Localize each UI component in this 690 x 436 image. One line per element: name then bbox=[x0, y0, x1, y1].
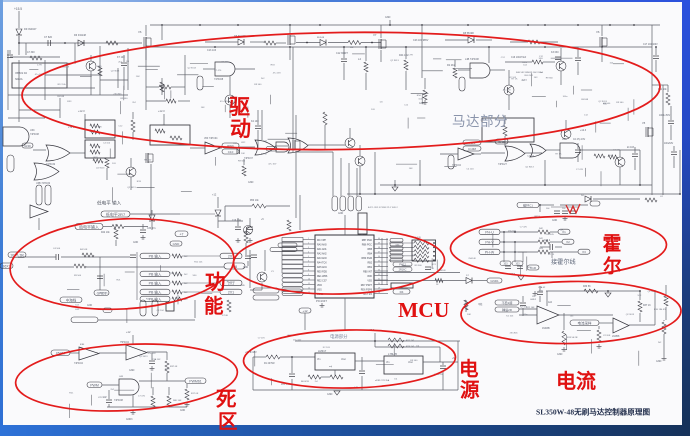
svg-text:R17 0K: R17 0K bbox=[191, 393, 199, 395]
svg-text:RA5 AN4: RA5 AN4 bbox=[317, 266, 327, 269]
svg-text:K2 103: K2 103 bbox=[323, 347, 331, 349]
svg-text:7: 7 bbox=[308, 265, 309, 267]
svg-text:5: 5 bbox=[308, 256, 309, 258]
svg-text:103: 103 bbox=[503, 262, 508, 265]
svg-text:R42 10k: R42 10k bbox=[101, 232, 110, 234]
svg-text:MC VPP: MC VPP bbox=[317, 240, 326, 242]
svg-text:9: 9 bbox=[308, 274, 309, 276]
svg-text:30: 30 bbox=[378, 283, 380, 285]
svg-text:SL350W-48无刷马达控制器原理图: SL350W-48无刷马达控制器原理图 bbox=[536, 407, 650, 417]
svg-text:C12: C12 bbox=[404, 104, 409, 106]
svg-text:C4 104: C4 104 bbox=[53, 248, 61, 250]
svg-text:GND: GND bbox=[385, 16, 391, 19]
svg-text:R4 51K: R4 51K bbox=[80, 249, 88, 251]
svg-text:R9 560: R9 560 bbox=[144, 159, 152, 161]
svg-text:D4: D4 bbox=[394, 378, 398, 380]
svg-text:RB4: RB4 bbox=[367, 253, 372, 255]
svg-text:PWM: PWM bbox=[90, 383, 99, 387]
svg-text:C7 470: C7 470 bbox=[95, 127, 103, 129]
svg-text:VSS: VSS bbox=[317, 289, 322, 291]
svg-text:5K6: 5K6 bbox=[396, 245, 401, 247]
svg-text:10K: 10K bbox=[241, 153, 245, 155]
svg-text:L4: L4 bbox=[358, 57, 361, 61]
svg-text:C10: C10 bbox=[228, 150, 234, 154]
svg-text:D7: D7 bbox=[466, 275, 470, 277]
svg-text:RB3 PGM: RB3 PGM bbox=[362, 258, 373, 260]
svg-text:U5F 74HC04: U5F 74HC04 bbox=[204, 138, 218, 140]
svg-text:U3C: U3C bbox=[30, 129, 35, 132]
svg-text:C12: C12 bbox=[584, 114, 589, 116]
svg-text:PB 输入: PB 输入 bbox=[149, 281, 162, 286]
svg-text:6: 6 bbox=[308, 260, 309, 262]
svg-text:RB7 PGD: RB7 PGD bbox=[362, 240, 373, 242]
svg-text:PH-W: PH-W bbox=[485, 251, 495, 255]
svg-text:Q2 9013: Q2 9013 bbox=[127, 187, 136, 189]
svg-text:11: 11 bbox=[308, 283, 310, 285]
svg-text:RB5: RB5 bbox=[367, 249, 372, 251]
svg-text:D4: D4 bbox=[315, 381, 319, 383]
svg-text:GND: GND bbox=[338, 213, 343, 215]
svg-text:C12: C12 bbox=[118, 126, 123, 128]
svg-text:功: 功 bbox=[205, 271, 226, 294]
svg-text:U4F: U4F bbox=[119, 376, 124, 378]
svg-text:C12: C12 bbox=[103, 397, 108, 399]
svg-text:电: 电 bbox=[459, 358, 479, 381]
svg-text:RA3 AN3: RA3 AN3 bbox=[317, 257, 327, 260]
svg-text:Q2 9013: Q2 9013 bbox=[390, 60, 399, 62]
svg-text:C4 104: C4 104 bbox=[103, 143, 111, 145]
svg-text:74HC37: 74HC37 bbox=[244, 157, 253, 160]
svg-text:V6: V6 bbox=[138, 30, 142, 34]
svg-text:C13 103: C13 103 bbox=[207, 49, 217, 52]
svg-text:100n: 100n bbox=[523, 314, 529, 316]
svg-text:R9 560: R9 560 bbox=[546, 78, 554, 80]
svg-text:中海线: 中海线 bbox=[66, 297, 77, 302]
svg-text:Q2 9013: Q2 9013 bbox=[188, 68, 197, 70]
svg-text:28: 28 bbox=[378, 292, 380, 294]
svg-text:39: 39 bbox=[378, 242, 380, 244]
svg-text:尔: 尔 bbox=[603, 256, 622, 277]
svg-text:R9 560: R9 560 bbox=[120, 98, 128, 100]
svg-text:GND2: GND2 bbox=[530, 299, 537, 301]
svg-text:磁环C1: 磁环C1 bbox=[523, 202, 533, 207]
svg-text:4.7R: 4.7R bbox=[408, 55, 413, 57]
svg-text:PB 输入: PB 输入 bbox=[149, 290, 162, 295]
svg-text:29: 29 bbox=[378, 287, 380, 289]
svg-text:R33: R33 bbox=[271, 65, 276, 67]
svg-text:104: 104 bbox=[546, 208, 550, 210]
svg-text:不稳: 不稳 bbox=[478, 302, 483, 306]
svg-text:V7: V7 bbox=[373, 33, 377, 37]
svg-text:2k2: 2k2 bbox=[658, 342, 662, 344]
svg-text:L4B 74HC08: L4B 74HC08 bbox=[465, 58, 479, 61]
svg-text:74HC04: 74HC04 bbox=[74, 362, 83, 365]
svg-text:C7 470: C7 470 bbox=[613, 150, 621, 152]
svg-text:RC7 RX: RC7 RX bbox=[363, 294, 372, 296]
svg-text:C7 470: C7 470 bbox=[214, 70, 222, 72]
svg-text:104: 104 bbox=[610, 63, 614, 65]
svg-text:RB2: RB2 bbox=[367, 262, 372, 264]
svg-text:1M03B: 1M03B bbox=[542, 327, 550, 330]
svg-text:R7 1K: R7 1K bbox=[548, 254, 555, 256]
svg-text:R7 1K: R7 1K bbox=[261, 153, 268, 155]
svg-text:C3A 102: C3A 102 bbox=[152, 358, 161, 361]
svg-text:Q2 9013: Q2 9013 bbox=[626, 314, 635, 316]
svg-text:C4 104: C4 104 bbox=[157, 310, 165, 312]
svg-text:RE0 RD5: RE0 RD5 bbox=[317, 271, 328, 273]
svg-text:C12: C12 bbox=[501, 57, 506, 59]
svg-text:R9 560: R9 560 bbox=[238, 161, 246, 163]
svg-text:35: 35 bbox=[378, 260, 380, 262]
svg-text:104: 104 bbox=[523, 65, 527, 67]
svg-text:GND: GND bbox=[327, 393, 333, 396]
svg-text:V5: V5 bbox=[642, 121, 646, 125]
svg-text:37: 37 bbox=[378, 251, 380, 253]
svg-text:C2 20K: C2 20K bbox=[603, 335, 611, 337]
svg-text:Q2 9013: Q2 9013 bbox=[525, 167, 534, 169]
svg-text:区: 区 bbox=[218, 411, 238, 433]
svg-text:VDD: VDD bbox=[367, 276, 372, 278]
svg-text:RB6 PGC: RB6 PGC bbox=[362, 244, 373, 246]
svg-text:103: 103 bbox=[534, 77, 538, 79]
svg-text:Q2 9013: Q2 9013 bbox=[96, 167, 105, 169]
svg-text:R21: R21 bbox=[117, 280, 122, 282]
svg-text:VDD: VDD bbox=[317, 285, 322, 287]
svg-text:GND1: GND1 bbox=[490, 279, 499, 283]
svg-text:12: 12 bbox=[308, 287, 310, 289]
svg-text:2SC945: 2SC945 bbox=[114, 94, 123, 96]
svg-text:GND: GND bbox=[552, 220, 557, 222]
svg-text:74HC08: 74HC08 bbox=[214, 78, 224, 81]
svg-text:LM358: LM358 bbox=[612, 335, 620, 338]
svg-text:2SC945: 2SC945 bbox=[546, 234, 555, 236]
svg-text:A7 300: A7 300 bbox=[27, 51, 35, 54]
svg-text:K2 103: K2 103 bbox=[509, 77, 517, 79]
svg-text:8: 8 bbox=[308, 269, 309, 271]
svg-text:V4: V4 bbox=[660, 196, 663, 198]
svg-text:2X1: 2X1 bbox=[228, 291, 234, 295]
svg-text:1: 1 bbox=[308, 238, 309, 240]
svg-text:100n: 100n bbox=[563, 96, 569, 98]
svg-text:RE1 WR6: RE1 WR6 bbox=[317, 276, 328, 278]
svg-text:不稳2措: 不稳2措 bbox=[502, 300, 513, 305]
svg-text:C10M: C10M bbox=[468, 147, 477, 151]
svg-text:Vin: Vin bbox=[386, 361, 390, 364]
svg-text:74HC08: 74HC08 bbox=[114, 399, 123, 402]
svg-text:R23 2k2: R23 2k2 bbox=[406, 346, 415, 348]
svg-text:10K: 10K bbox=[637, 295, 641, 297]
svg-text:R3T 1K: R3T 1K bbox=[643, 305, 651, 307]
svg-text:5K6: 5K6 bbox=[539, 58, 544, 60]
svg-text:uF3R C7R 35A: uF3R C7R 35A bbox=[375, 379, 390, 382]
svg-text:PB 输入: PB 输入 bbox=[149, 272, 162, 277]
svg-text:C7 820: C7 820 bbox=[44, 36, 53, 39]
svg-text:R12 10k: R12 10k bbox=[194, 262, 203, 264]
svg-text:GND: GND bbox=[248, 181, 254, 184]
svg-text:R9 560: R9 560 bbox=[616, 102, 624, 104]
svg-text:R9 560: R9 560 bbox=[74, 275, 82, 277]
svg-text:R30 5K: R30 5K bbox=[583, 286, 591, 288]
svg-text:RD7 PSP7: RD7 PSP7 bbox=[361, 285, 373, 287]
svg-text:103: 103 bbox=[371, 109, 375, 111]
svg-text:低电平2R7: 低电平2R7 bbox=[106, 211, 126, 217]
svg-text:R40 5K1: R40 5K1 bbox=[525, 75, 534, 77]
svg-text:K3 030: K3 030 bbox=[551, 51, 559, 54]
svg-text:47u 16V: 47u 16V bbox=[220, 101, 229, 103]
svg-text:R6D 50K: R6D 50K bbox=[173, 400, 182, 402]
svg-text:47u 16V: 47u 16V bbox=[148, 353, 157, 355]
svg-text:GND: GND bbox=[243, 267, 248, 269]
svg-text:低电平 输入: 低电平 输入 bbox=[97, 200, 122, 207]
svg-text:K2 103: K2 103 bbox=[506, 315, 514, 317]
svg-text:V1: V1 bbox=[271, 271, 274, 273]
svg-text:R12 10k: R12 10k bbox=[227, 281, 236, 283]
svg-text:1K: 1K bbox=[436, 284, 439, 286]
svg-text:RA1 AN1: RA1 AN1 bbox=[317, 248, 327, 251]
svg-text:R21: R21 bbox=[432, 264, 437, 266]
svg-text:R56: R56 bbox=[417, 95, 422, 97]
svg-text:源: 源 bbox=[460, 379, 480, 402]
svg-text:IN4148: IN4148 bbox=[469, 258, 477, 260]
svg-text:X2: X2 bbox=[566, 240, 570, 244]
svg-text:R0 8CR: R0 8CR bbox=[301, 381, 309, 383]
svg-text:104: 104 bbox=[532, 296, 536, 298]
svg-text:GND: GND bbox=[24, 144, 32, 148]
svg-text:IN4148: IN4148 bbox=[581, 99, 589, 101]
svg-text:R1 2R 5W: R1 2R 5W bbox=[264, 363, 275, 365]
svg-text:马达部分: 马达部分 bbox=[452, 114, 508, 129]
svg-text:C17 104 100V: C17 104 100V bbox=[643, 44, 658, 46]
svg-text:100n: 100n bbox=[165, 368, 171, 370]
svg-text:能: 能 bbox=[204, 295, 224, 318]
svg-text:5K6: 5K6 bbox=[193, 275, 198, 277]
svg-text:GND: GND bbox=[180, 410, 185, 412]
svg-text:100u63V: 100u63V bbox=[664, 143, 674, 145]
svg-text:死: 死 bbox=[216, 388, 237, 411]
svg-text:R12 10k: R12 10k bbox=[58, 84, 67, 86]
svg-text:2R16C: 2R16C bbox=[399, 268, 407, 271]
svg-text:电流采样: 电流采样 bbox=[578, 320, 592, 325]
svg-text:GND: GND bbox=[557, 353, 563, 356]
svg-text:R50 10k: R50 10k bbox=[250, 200, 259, 202]
svg-text:D6: D6 bbox=[581, 195, 585, 197]
svg-text:2: 2 bbox=[308, 242, 309, 244]
svg-text:C4 104: C4 104 bbox=[466, 168, 474, 170]
svg-text:GND: GND bbox=[656, 360, 662, 363]
svg-text:V6: V6 bbox=[596, 30, 600, 34]
svg-text:R9 560: R9 560 bbox=[415, 265, 423, 267]
svg-text:R22 2k2: R22 2k2 bbox=[406, 340, 415, 342]
svg-text:R7 1K: R7 1K bbox=[555, 154, 562, 156]
svg-text:2SC945: 2SC945 bbox=[508, 231, 517, 233]
svg-text:GND: GND bbox=[133, 242, 138, 244]
svg-text:LM317: LM317 bbox=[318, 349, 327, 353]
svg-text:电源部分: 电源部分 bbox=[330, 333, 348, 340]
svg-text:RA4 TCK: RA4 TCK bbox=[317, 261, 327, 264]
svg-text:PWM61: PWM61 bbox=[189, 379, 202, 383]
svg-text:33: 33 bbox=[378, 269, 380, 271]
svg-text:2k2: 2k2 bbox=[132, 102, 136, 104]
svg-text:动: 动 bbox=[230, 118, 251, 141]
svg-text:C7 470: C7 470 bbox=[520, 226, 528, 228]
svg-text:驱: 驱 bbox=[229, 96, 250, 119]
svg-text:R3T 0K: R3T 0K bbox=[170, 366, 178, 368]
svg-text:R33: R33 bbox=[75, 309, 80, 311]
svg-text:R4: R4 bbox=[400, 290, 404, 294]
svg-text:U2C: U2C bbox=[241, 142, 246, 144]
svg-text:47u 16V: 47u 16V bbox=[503, 90, 512, 92]
svg-text:10K: 10K bbox=[467, 314, 471, 316]
svg-text:A7C1.2R2.3 PWM 2P-1 WXL2: A7C1.2R2.3 PWM 2P-1 WXL2 bbox=[368, 206, 398, 209]
svg-text:74HC27: 74HC27 bbox=[498, 163, 507, 166]
svg-text:47u 16V: 47u 16V bbox=[268, 164, 277, 166]
svg-text:U3B 74HC32: U3B 74HC32 bbox=[36, 182, 51, 185]
svg-text:C33 47u: C33 47u bbox=[147, 228, 156, 230]
svg-text:4.7R: 4.7R bbox=[538, 290, 543, 292]
svg-text:E3N: E3N bbox=[80, 344, 85, 346]
svg-text:10K: 10K bbox=[136, 76, 140, 78]
svg-text:+12: +12 bbox=[126, 330, 131, 334]
svg-text:RB0 INT: RB0 INT bbox=[363, 271, 373, 273]
svg-text:104: 104 bbox=[570, 315, 574, 317]
svg-text:R33: R33 bbox=[137, 181, 142, 183]
svg-text:R21: R21 bbox=[69, 392, 74, 394]
svg-text:C16 100473uF: C16 100473uF bbox=[511, 57, 527, 59]
svg-text:D9 IN4047: D9 IN4047 bbox=[24, 27, 37, 31]
svg-text:D4: D4 bbox=[126, 61, 130, 63]
svg-text:10K: 10K bbox=[560, 230, 564, 232]
svg-text:+12.3: +12.3 bbox=[78, 109, 85, 113]
svg-text:R33: R33 bbox=[67, 101, 72, 103]
svg-text:k4 103: k4 103 bbox=[627, 147, 635, 149]
svg-text:GND3: GND3 bbox=[126, 419, 133, 421]
svg-text:RA2 AN2: RA2 AN2 bbox=[317, 252, 327, 255]
svg-text:4: 4 bbox=[308, 251, 309, 253]
svg-text:GND: GND bbox=[173, 242, 181, 246]
svg-text:PB 输入: PB 输入 bbox=[149, 297, 162, 302]
svg-text:103: 103 bbox=[112, 163, 116, 165]
svg-text:2SC945: 2SC945 bbox=[510, 332, 519, 334]
svg-text:2k2: 2k2 bbox=[184, 274, 188, 276]
svg-text:IN4148: IN4148 bbox=[57, 96, 65, 98]
svg-text:36: 36 bbox=[378, 256, 380, 258]
svg-text:+7: +7 bbox=[180, 232, 184, 236]
svg-text:R40 5K2 IN5819 10K V5AA: R40 5K2 IN5819 10K V5AA bbox=[516, 71, 543, 74]
svg-text:霍: 霍 bbox=[603, 233, 622, 255]
svg-text:K2 103: K2 103 bbox=[520, 307, 528, 309]
svg-text:10: 10 bbox=[308, 278, 310, 280]
svg-text:+12.3: +12.3 bbox=[580, 129, 587, 132]
svg-text:R2 2K2: R2 2K2 bbox=[447, 64, 456, 67]
svg-text:R22 10K: R22 10K bbox=[526, 307, 535, 309]
svg-text:R9 560: R9 560 bbox=[254, 84, 262, 86]
svg-text:104: 104 bbox=[75, 305, 79, 307]
svg-text:C4 104: C4 104 bbox=[527, 156, 535, 158]
svg-text:PB 输入: PB 输入 bbox=[149, 254, 162, 259]
svg-text:RA0 AN0: RA0 AN0 bbox=[317, 243, 327, 246]
svg-text:+12.3: +12.3 bbox=[158, 109, 165, 113]
svg-text:+12: +12 bbox=[302, 309, 307, 313]
svg-text:MCU: MCU bbox=[398, 298, 449, 322]
svg-text:32: 32 bbox=[378, 274, 380, 276]
svg-text:+12: +12 bbox=[212, 194, 217, 197]
svg-text:C2A 42: C2A 42 bbox=[538, 286, 546, 289]
svg-text:34: 34 bbox=[378, 265, 380, 267]
svg-text:R10 194.5%: R10 194.5% bbox=[654, 309, 666, 311]
svg-text:GND: GND bbox=[97, 66, 102, 68]
svg-text:74HC08: 74HC08 bbox=[30, 133, 39, 136]
svg-text:GND: GND bbox=[129, 369, 135, 372]
svg-text:接霍尔线: 接霍尔线 bbox=[551, 258, 576, 266]
svg-text:+15.5: +15.5 bbox=[14, 7, 22, 11]
svg-text:Q2 9013: Q2 9013 bbox=[139, 356, 148, 358]
svg-text:2k2: 2k2 bbox=[261, 78, 265, 80]
svg-text:adj: adj bbox=[329, 366, 332, 368]
svg-text:+5: +5 bbox=[261, 219, 264, 221]
svg-text:C12 3649T: C12 3649T bbox=[336, 52, 348, 55]
svg-text:L78L05: L78L05 bbox=[388, 352, 397, 356]
svg-text:C7 470: C7 470 bbox=[258, 338, 266, 340]
svg-text:40: 40 bbox=[378, 238, 380, 240]
svg-text:104: 104 bbox=[562, 208, 566, 210]
svg-text:4.7R: 4.7R bbox=[37, 65, 42, 67]
svg-text:电流: 电流 bbox=[556, 369, 596, 393]
svg-text:31: 31 bbox=[378, 278, 380, 280]
svg-text:3: 3 bbox=[308, 247, 309, 249]
svg-text:R9 560: R9 560 bbox=[410, 360, 418, 362]
svg-text:R13 56.2R: R13 56.2R bbox=[567, 337, 578, 339]
svg-text:U5A: U5A bbox=[562, 138, 567, 141]
svg-text:GND: GND bbox=[87, 305, 92, 307]
svg-text:PIC16F7: PIC16F7 bbox=[316, 299, 327, 303]
svg-text:C4 104: C4 104 bbox=[221, 62, 229, 64]
svg-text:C16 104: C16 104 bbox=[232, 220, 241, 222]
svg-text:47u 16V: 47u 16V bbox=[273, 73, 282, 75]
svg-text:2k2: 2k2 bbox=[111, 389, 115, 391]
svg-text:C23 184 985V: C23 184 985V bbox=[413, 39, 429, 42]
svg-text:10K: 10K bbox=[201, 107, 205, 109]
svg-text:RD6 PSP6: RD6 PSP6 bbox=[361, 289, 373, 291]
svg-text:38: 38 bbox=[378, 247, 380, 249]
svg-text:轉速2R: 轉速2R bbox=[502, 307, 513, 312]
svg-text:Vout: Vout bbox=[341, 358, 346, 361]
svg-text:R4C: R4C bbox=[539, 228, 544, 230]
svg-text:RB1: RB1 bbox=[367, 267, 372, 269]
svg-text:D4: D4 bbox=[380, 102, 384, 104]
svg-text:C7 470: C7 470 bbox=[138, 396, 146, 398]
svg-text:D6 IN4148: D6 IN4148 bbox=[74, 34, 87, 37]
svg-text:Vin: Vin bbox=[317, 358, 321, 361]
svg-text:VSS: VSS bbox=[367, 280, 372, 282]
svg-text:RE2 CS7: RE2 CS7 bbox=[317, 280, 327, 282]
svg-text:1000u 50V: 1000u 50V bbox=[659, 115, 671, 117]
svg-text:IN4148: IN4148 bbox=[317, 37, 325, 39]
svg-text:Q2 9013: Q2 9013 bbox=[111, 70, 120, 72]
svg-text:12A: 12A bbox=[548, 301, 553, 304]
svg-text:C2 47p 16V: C2 47p 16V bbox=[573, 139, 586, 141]
svg-text:100n: 100n bbox=[522, 62, 528, 64]
svg-text:103: 103 bbox=[515, 262, 520, 265]
svg-text:C7 470: C7 470 bbox=[576, 169, 584, 171]
svg-text:C20 4: C20 4 bbox=[544, 240, 551, 242]
svg-text:X3: X3 bbox=[582, 250, 586, 254]
svg-text:R12 10k: R12 10k bbox=[100, 292, 109, 294]
svg-text:47u 16V: 47u 16V bbox=[293, 340, 302, 342]
svg-text:IN5819 D4: IN5819 D4 bbox=[15, 72, 28, 75]
svg-text:10K: 10K bbox=[409, 168, 413, 170]
